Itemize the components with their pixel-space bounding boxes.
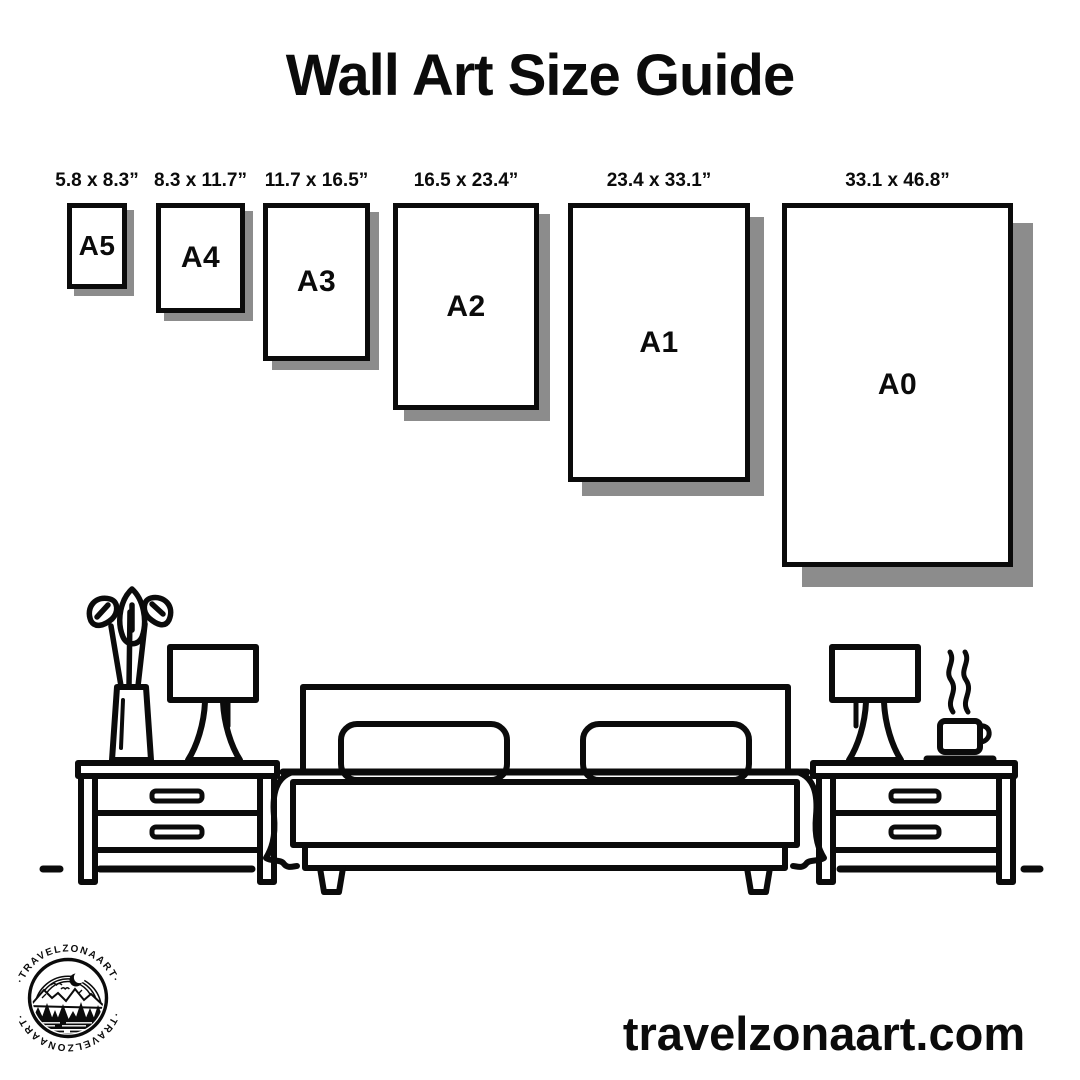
table-lamp-left-icon (170, 647, 256, 760)
paper-size-letter-a0: A0 (878, 368, 917, 402)
paper-a4: A4 (156, 203, 245, 313)
paper-size-letter-a1: A1 (639, 326, 678, 360)
paper-size-letter-a2: A2 (446, 290, 485, 324)
size-dimensions-label-a1: 23.4 x 33.1” (607, 170, 712, 192)
website-url: travelzonaart.com (623, 1006, 1025, 1061)
mattress (293, 782, 797, 845)
size-item-a2: 16.5 x 23.4” A2 (393, 203, 539, 410)
bed-leg-right (747, 868, 770, 892)
paper-size-letter-a3: A3 (297, 265, 336, 299)
logo-mountains-icon (30, 989, 106, 1008)
paper-a2: A2 (393, 203, 539, 410)
logo-moon-icon (70, 972, 86, 987)
headboard (303, 687, 788, 772)
size-dimensions-label-a2: 16.5 x 23.4” (414, 170, 519, 192)
paper-a1: A1 (568, 203, 750, 482)
bed-leg-left (320, 868, 343, 892)
brand-logo: ·TRAVELZONAART· ·TRAVELZONAART· (6, 934, 130, 1064)
paper-size-letter-a5: A5 (79, 230, 116, 262)
paper-a0: A0 (782, 203, 1013, 567)
page-title: Wall Art Size Guide (0, 42, 1080, 109)
nightstand-left-icon (78, 763, 277, 882)
size-item-a5: 5.8 x 8.3” A5 (67, 203, 127, 289)
steam-icon (949, 652, 969, 712)
plant-vase-icon (89, 589, 170, 760)
bedroom-illustration (0, 580, 1080, 910)
coffee-cup-icon (927, 652, 993, 759)
size-guide-infographic: Wall Art Size Guide 5.8 x 8.3” A5 8.3 x … (0, 0, 1080, 1080)
table-lamp-right-icon (832, 647, 918, 760)
size-dimensions-label-a3: 11.7 x 16.5” (265, 170, 369, 192)
bed-icon (266, 687, 824, 892)
paper-size-letter-a4: A4 (181, 241, 220, 275)
size-item-a3: 11.7 x 16.5” A3 (263, 203, 370, 361)
size-dimensions-label-a4: 8.3 x 11.7” (154, 170, 247, 192)
size-item-a0: 33.1 x 46.8” A0 (782, 203, 1013, 567)
size-item-a1: 23.4 x 33.1” A1 (568, 203, 750, 482)
size-dimensions-label-a5: 5.8 x 8.3” (55, 170, 138, 192)
paper-a3: A3 (263, 203, 370, 361)
size-item-a4: 8.3 x 11.7” A4 (156, 203, 245, 313)
nightstand-right-icon (813, 763, 1015, 882)
bed-base (305, 845, 785, 868)
size-dimensions-label-a0: 33.1 x 46.8” (845, 170, 950, 192)
paper-a5: A5 (67, 203, 127, 289)
